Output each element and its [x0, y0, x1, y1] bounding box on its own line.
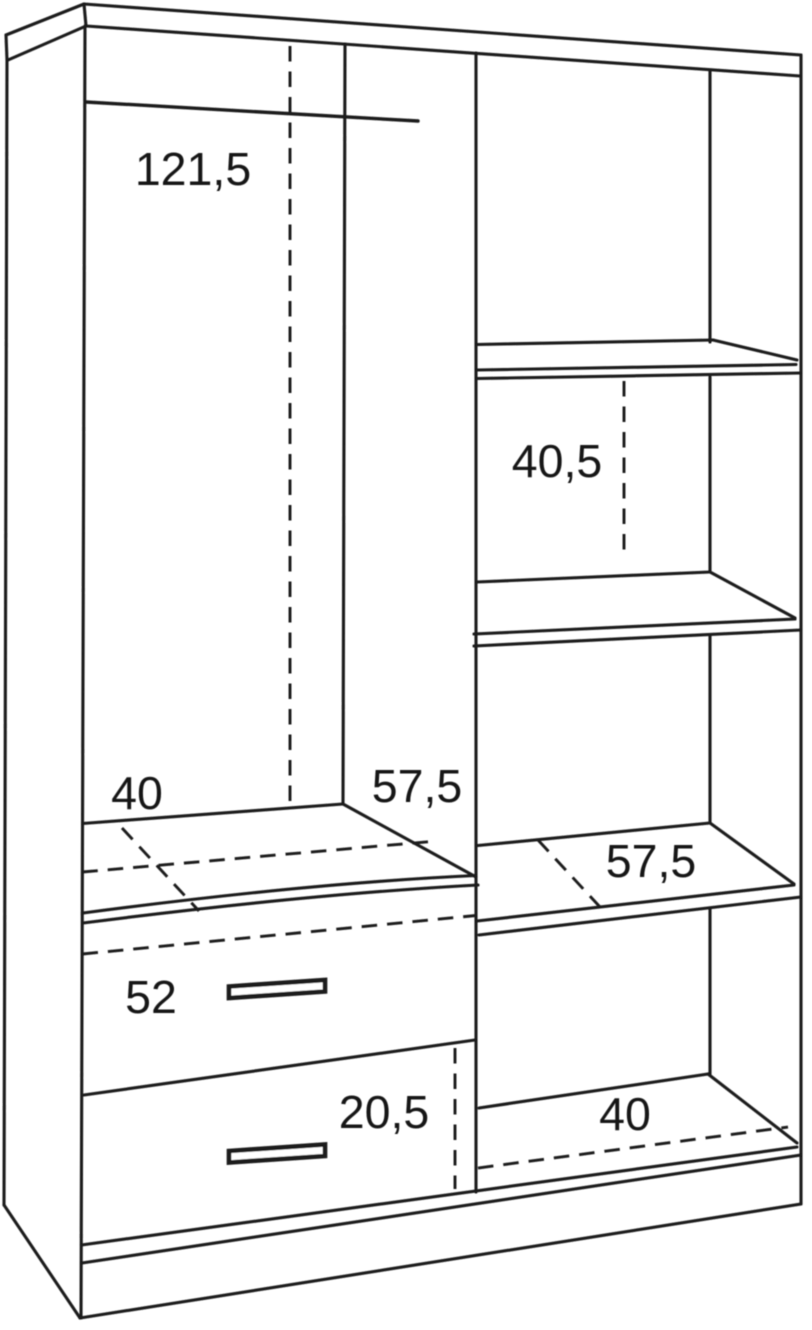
- svg-text:40,5: 40,5: [512, 435, 603, 487]
- svg-text:40: 40: [111, 767, 163, 819]
- svg-text:121,5: 121,5: [135, 143, 251, 195]
- svg-text:57,5: 57,5: [606, 835, 697, 887]
- svg-text:57,5: 57,5: [372, 760, 463, 812]
- svg-text:40: 40: [599, 1088, 651, 1140]
- svg-text:52: 52: [125, 971, 177, 1023]
- svg-text:20,5: 20,5: [339, 1086, 430, 1138]
